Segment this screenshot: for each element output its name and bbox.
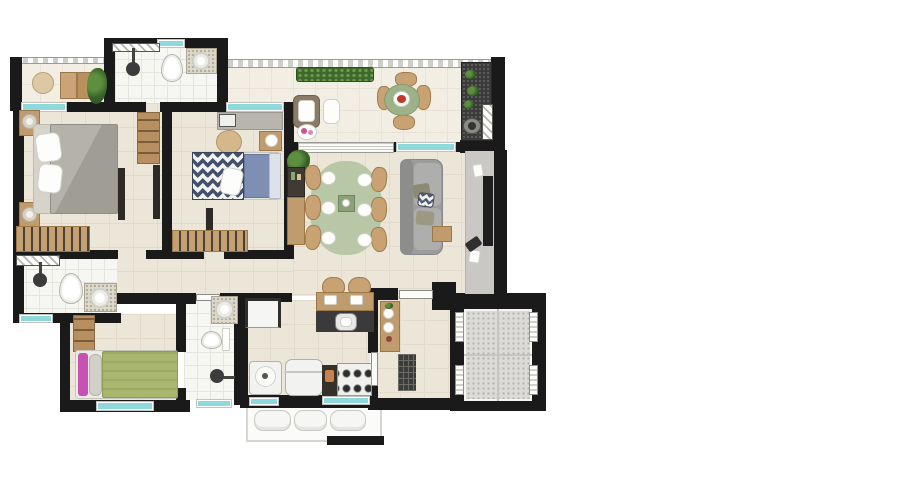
counter-sink-drain [468,122,476,130]
island-placemat-1 [324,295,337,305]
terrace-side-table [297,124,317,140]
sideboard-bottle-1 [291,172,295,180]
shoe-rack [398,354,416,391]
tv-shelf-item-1 [472,163,484,178]
kitchen-window-a [250,398,278,405]
bar-stool-2 [348,277,371,293]
shower-head-icon [126,62,140,76]
island-sink-basin [340,317,352,327]
dining-plate-1 [321,171,336,185]
toilet-social [161,54,183,82]
washer-knob [262,373,268,379]
wall-living-right [494,150,507,297]
elevator-rail-right-1 [529,312,538,342]
bar-stool-1 [322,277,345,293]
shower-head-ensuite [33,273,47,287]
sofa-backrest [400,159,413,255]
ac-unit-1 [254,410,291,431]
bathroom3-window [197,400,231,407]
bedroom2-window [227,103,283,111]
refrigerator-cabinet [245,298,281,328]
elevator-rail-right-2 [529,365,538,395]
master-wardrobe [16,226,90,252]
elevator-rail-left-2 [455,365,464,395]
master-pillow-1 [34,131,63,163]
ac-unit-3 [330,410,366,431]
terrace-food [397,95,406,103]
closet-door [153,165,160,219]
terrace-chair-bottom [393,115,415,130]
toilet-bath3 [201,331,222,349]
bedroom3-shelf [73,315,95,352]
elevator-rail-left-1 [455,312,464,342]
sideboard-bottle-2 [297,174,301,180]
bed3-pillow-pink [78,353,88,396]
social-bathroom-window [158,40,184,47]
terrace-sliding-door [298,142,394,153]
elevator-divider-v [497,309,499,401]
tv [483,176,493,246]
bed2-headboard [269,153,281,199]
sofa-pillow-olive-2 [415,210,434,226]
balcony-railing [17,57,107,64]
sink-basin-social [192,52,210,70]
dining-chair-5 [371,197,387,222]
refrigerator-door-line [285,371,323,373]
nightstand-tray [265,134,278,147]
sink-basin-bath3 [215,300,234,319]
dining-plate-2 [321,201,336,215]
bedroom2-wardrobe [172,230,248,252]
toilet-ensuite [59,273,83,304]
wall-bed3-top-a [117,293,196,304]
wall-bed3-bath3-a [176,304,186,352]
master-pillow-2 [37,163,64,194]
lounge-chair-left [60,72,77,99]
terrace-hedge [296,67,374,82]
console-decor-2 [383,322,394,333]
wall-bath-top-right [217,38,228,112]
island-placemat-2 [350,295,363,305]
bed3-green-spread [102,351,178,398]
floor-plan [0,0,898,502]
wall-master-bed2 [162,108,172,254]
dining-candle [342,199,350,207]
spice-rack-jars [325,370,334,382]
sideboard-top [287,167,305,197]
dining-plate-4 [357,173,372,187]
living-terrace-window [397,143,455,151]
desk-chair [216,130,242,154]
sofa-pillow-chevron [417,192,435,208]
sofa-side-table [432,226,452,242]
ledge-step [327,436,384,445]
ensuite-window [20,315,52,322]
console-decor-1 [383,308,394,319]
kitchen-window-b [323,397,369,404]
balcony-pouf [32,72,54,94]
dining-chair-2 [305,195,321,220]
entry-door [399,290,433,299]
bed3-bolster [89,354,102,396]
stove [337,363,372,396]
sink-basin-ensuite [90,288,110,308]
sideboard-base [287,197,305,245]
laptop [219,114,236,127]
wall-hall-bottom [370,398,454,410]
shower-box-hatch [112,43,160,52]
bedroom3-window [97,402,153,410]
barbecue-grill [482,104,493,140]
master-door [118,168,125,220]
master-shelf [137,112,160,164]
shower-head-bath3 [210,369,224,383]
ac-unit-2 [294,410,327,431]
shower-box-hatch-ensuite [16,255,60,266]
toilet-tank-bath3 [222,328,230,351]
terrace-ottoman [323,99,340,124]
console-decor-3 [386,336,392,342]
side-table-decor-pink [301,128,307,134]
dining-plate-5 [357,203,372,217]
dining-plate-3 [321,231,336,245]
wall-bed3-left [60,318,70,412]
terrace-armchair-cushion [298,100,315,122]
refrigerator [285,359,323,396]
service-door [371,352,378,386]
dining-plate-6 [357,233,372,247]
side-table-decor-rose [308,130,313,135]
